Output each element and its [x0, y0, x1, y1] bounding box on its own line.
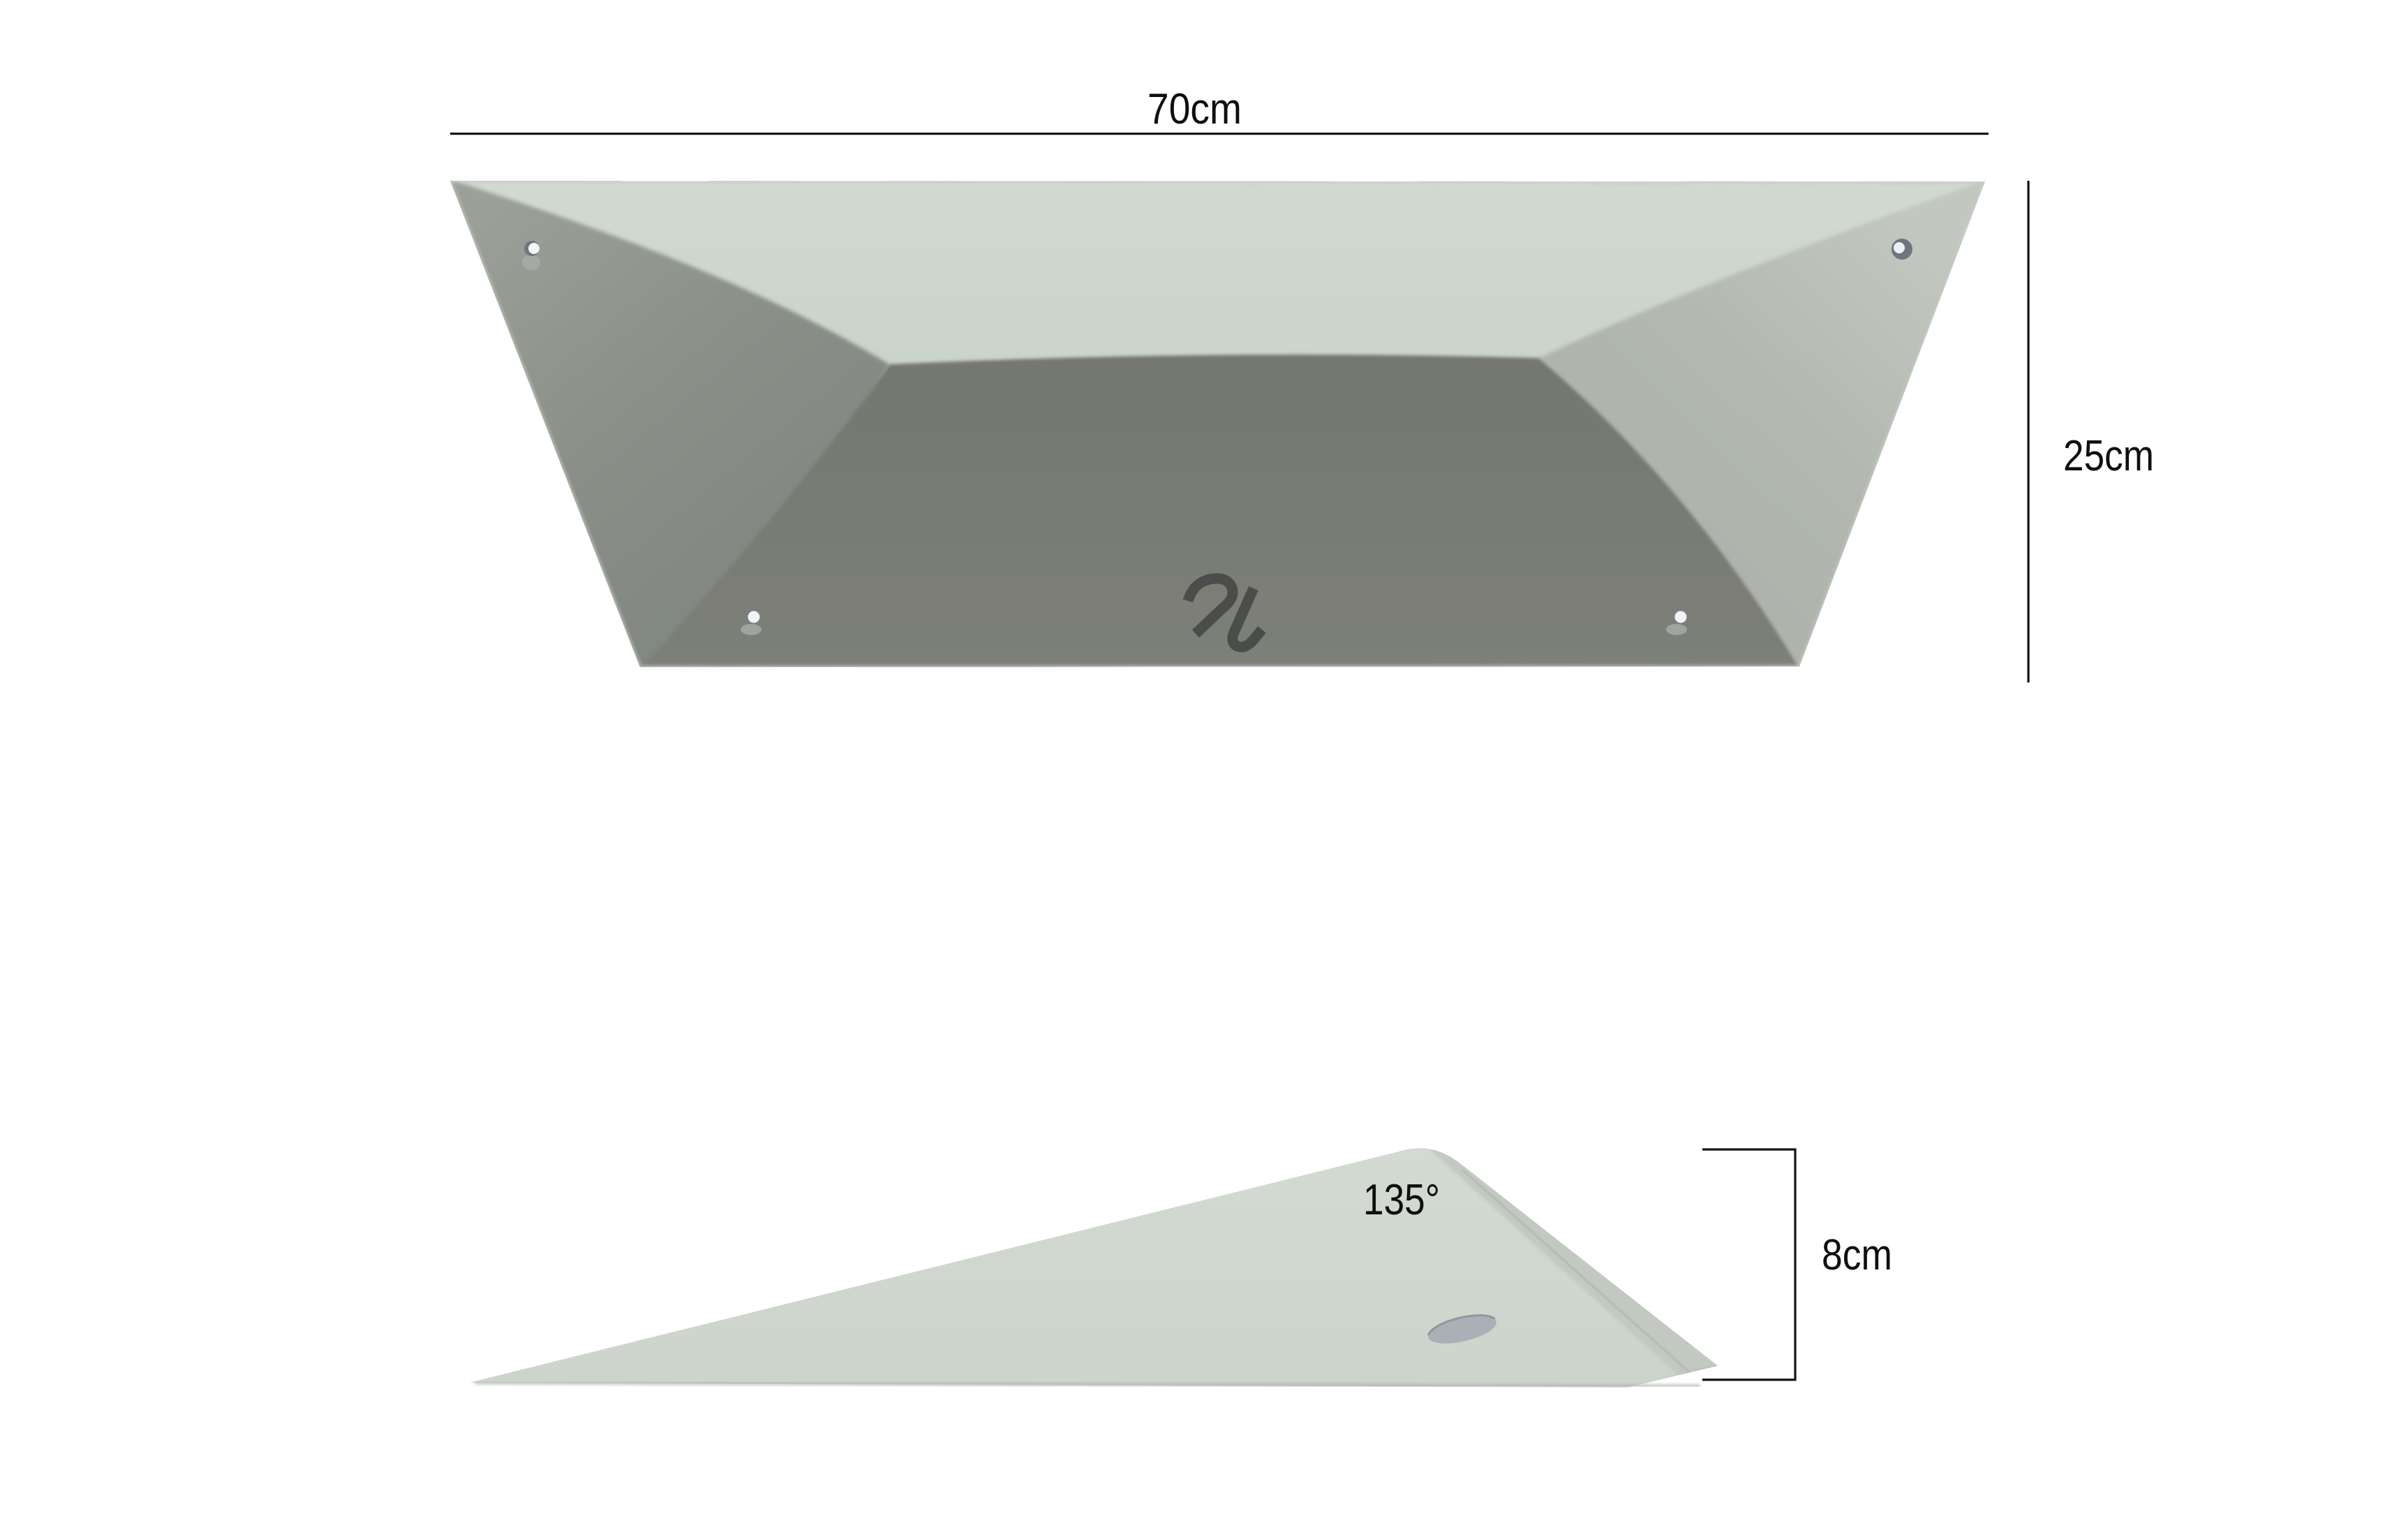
svg-text:70cm: 70cm — [1147, 85, 1242, 133]
svg-text:135°: 135° — [1363, 1176, 1440, 1224]
svg-text:8cm: 8cm — [1822, 1231, 1892, 1279]
svg-text:25cm: 25cm — [2063, 432, 2154, 480]
